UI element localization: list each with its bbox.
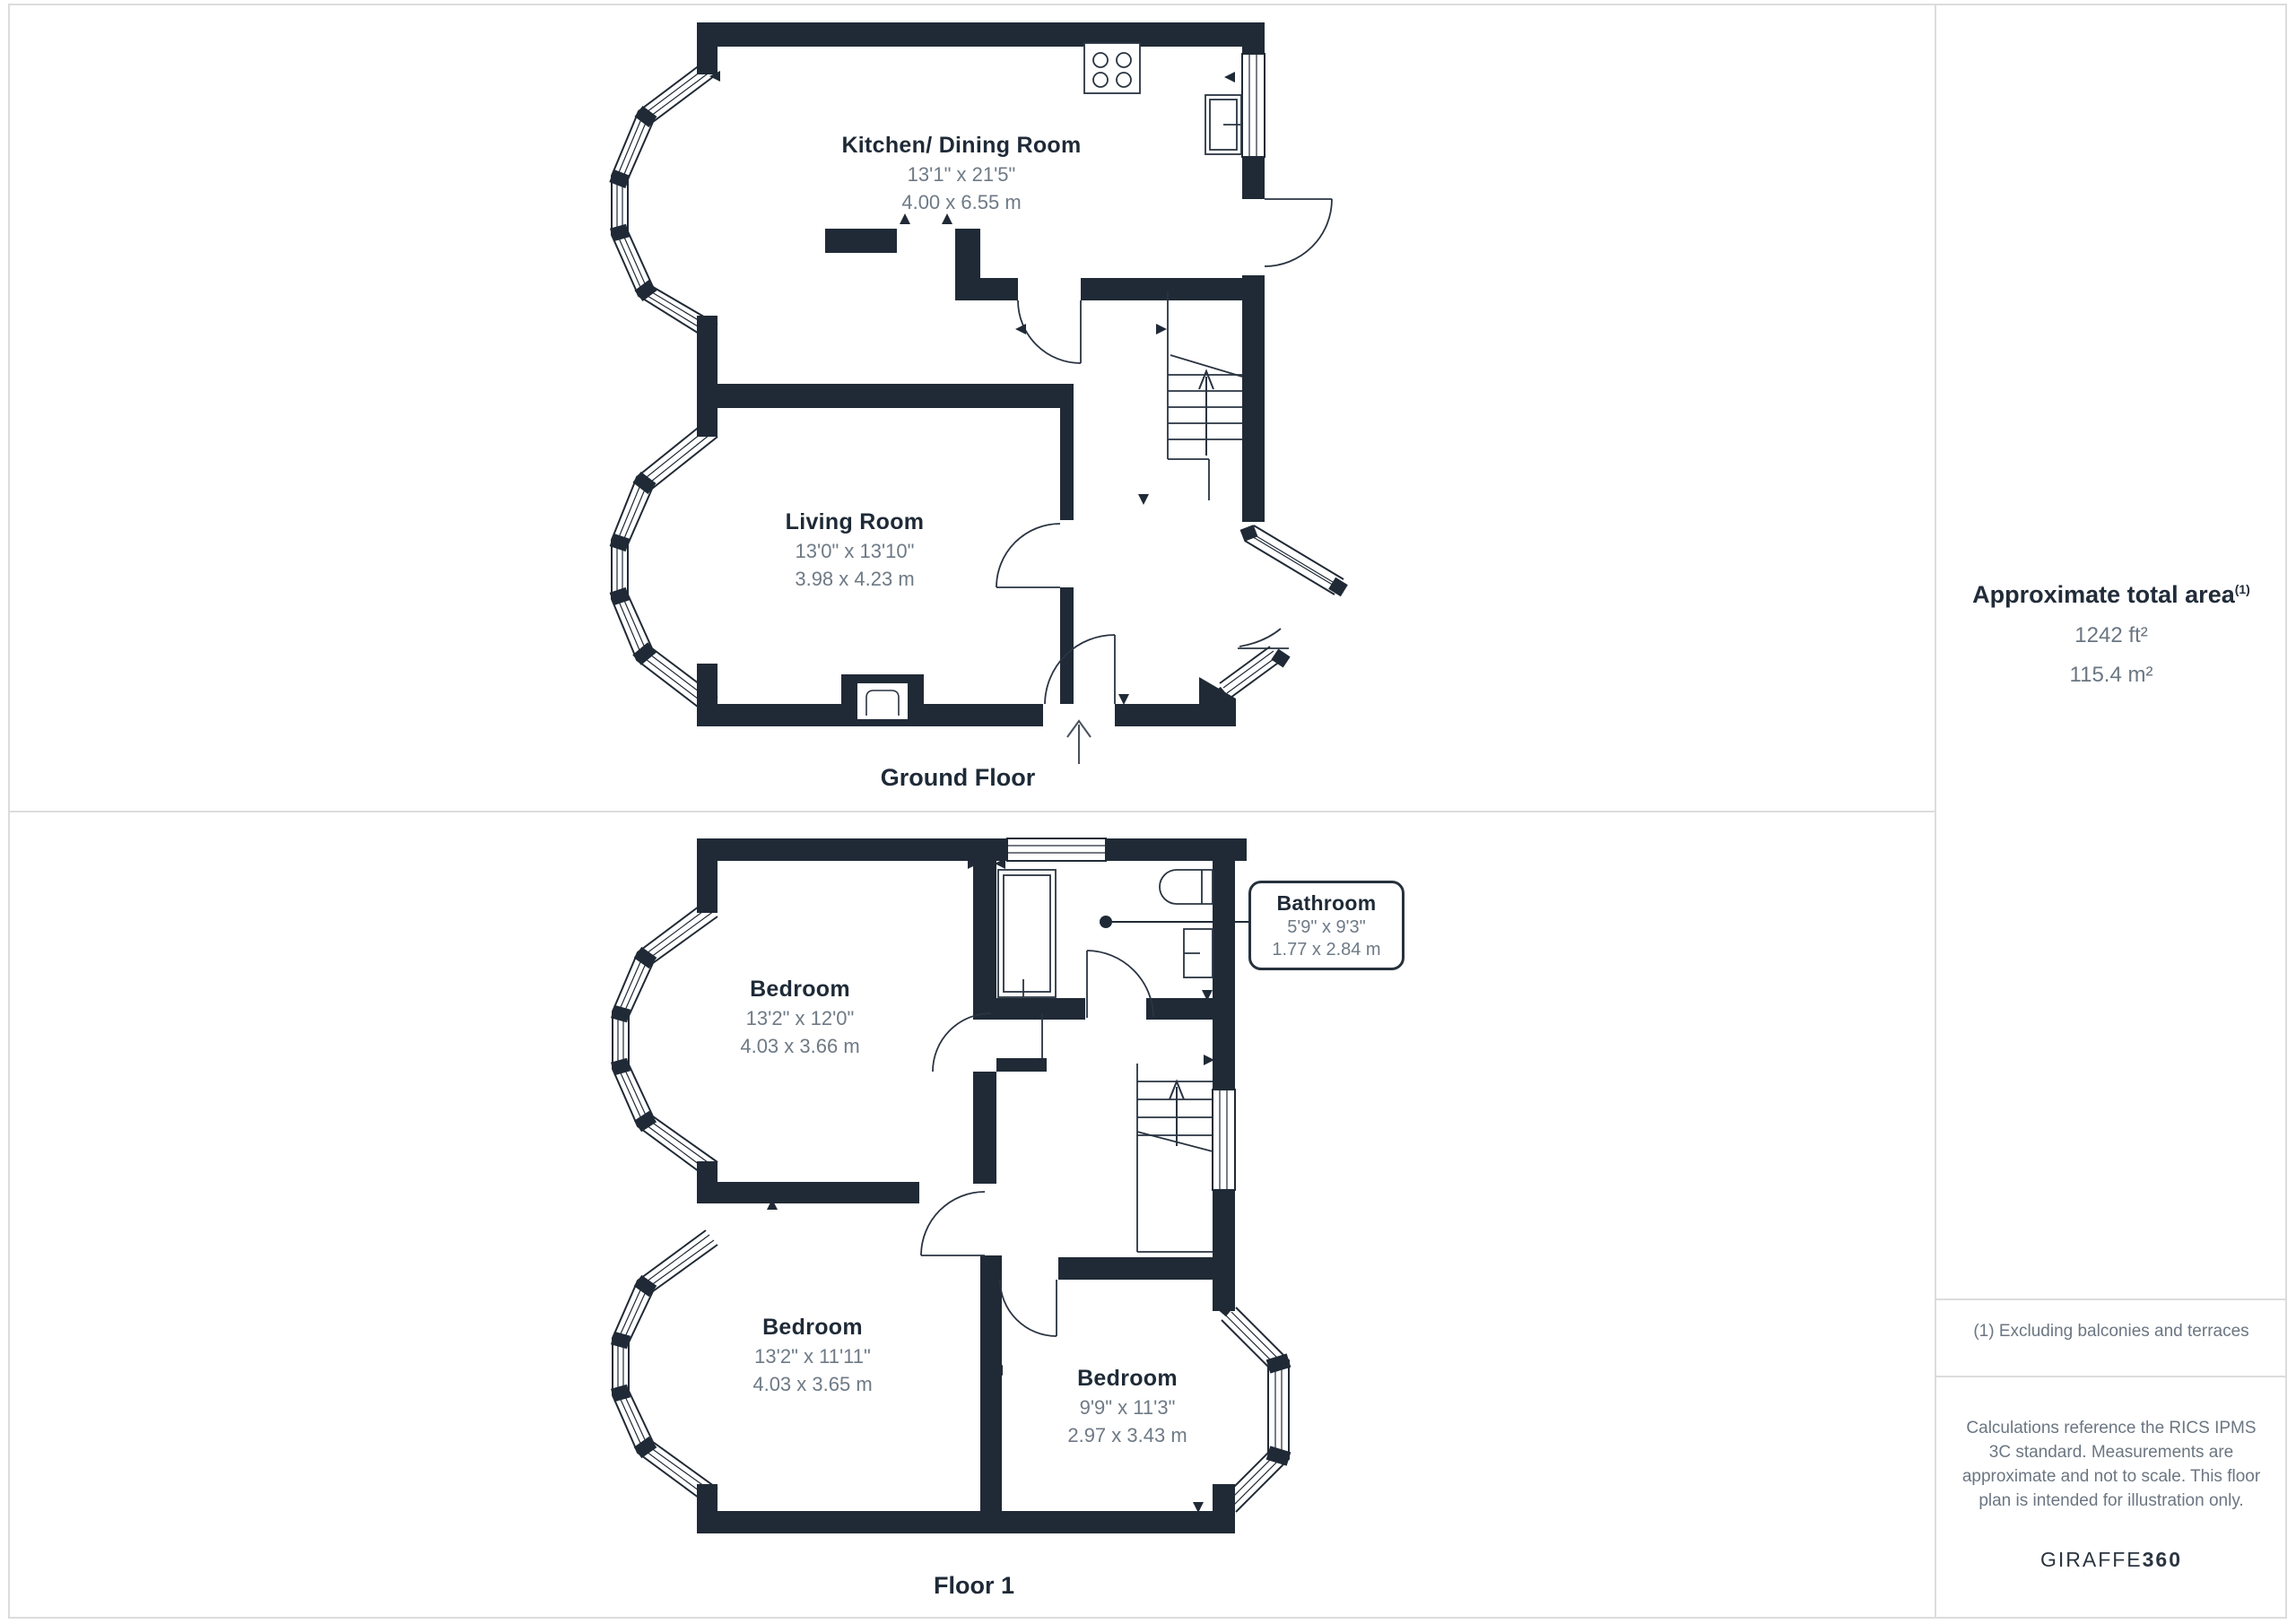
stairs-up-icon-floor1 <box>1137 1064 1213 1252</box>
kitchen-hall-door-swing <box>1018 300 1081 363</box>
bay-window-bedroom2 <box>613 1230 717 1503</box>
sink-icon <box>1205 95 1241 154</box>
ground-floor-plan <box>612 22 1344 764</box>
total-area-block: Approximate total area(1) 1242 ft² 115.4… <box>1935 581 2287 688</box>
logo-right: 360 <box>2143 1548 2182 1571</box>
room-title: Bathroom <box>1276 891 1376 916</box>
footnote-exclusions: (1) Excluding balconies and terraces <box>1944 1322 2278 1342</box>
bathroom-door-swing <box>1087 951 1153 1018</box>
window-hall-right <box>1213 1090 1235 1190</box>
side-door-swing <box>1265 199 1332 266</box>
sidebar: Approximate total area(1) 1242 ft² 115.4… <box>1935 4 2287 1619</box>
living-door-swing <box>996 524 1060 587</box>
hob-icon <box>1084 43 1140 93</box>
total-area-m: 115.4 m² <box>1935 663 2287 688</box>
total-area-title: Approximate total area(1) <box>1935 581 2287 609</box>
logo-left: GIRAFFE <box>2040 1548 2143 1571</box>
window-right-kitchen <box>1242 54 1265 157</box>
floor1-walls <box>697 838 1247 1533</box>
bathtub-icon <box>1160 870 1213 904</box>
entrance-arrow-icon <box>1067 721 1091 764</box>
bedroom2-door-swing <box>921 1192 985 1255</box>
footnote-disclaimer: Calculations reference the RICS IPMS 3C … <box>1959 1416 2264 1513</box>
total-area-title-text: Approximate total area <box>1972 581 2235 608</box>
window-bathroom-top <box>1007 838 1106 861</box>
total-area-footnote-marker: (1) <box>2235 582 2250 596</box>
room-dim-imperial: 5'9" x 9'3" <box>1287 917 1365 938</box>
floor1-plan <box>613 838 1289 1533</box>
total-area-ft: 1242 ft² <box>1935 623 2287 648</box>
giraffe360-logo: GIRAFFE360 <box>1935 1548 2287 1572</box>
bathroom-callout: Bathroom 5'9" x 9'3" 1.77 x 2.84 m <box>1248 881 1405 970</box>
callout-leader-dot <box>1100 916 1112 928</box>
basin-icon <box>1184 929 1213 977</box>
fireplace-icon <box>857 683 908 719</box>
shower-icon <box>998 870 1056 997</box>
porch-door-swing <box>1238 629 1289 648</box>
room-dim-metric: 1.77 x 2.84 m <box>1272 940 1380 960</box>
ground-floor-label: Ground Floor <box>823 764 1092 792</box>
porch-bay <box>1214 525 1344 701</box>
front-door-swing <box>1045 635 1115 704</box>
bedroom3-door-swing <box>1000 1280 1057 1336</box>
stairs-up-icon <box>1168 291 1242 500</box>
bay-window-kitchen <box>612 59 717 339</box>
bay-window-bedroom1 <box>613 901 717 1177</box>
floorplan-page: { "rooms": { "kitchen": {"name": "Kitche… <box>0 0 2296 1624</box>
floor1-label: Floor 1 <box>839 1572 1109 1600</box>
